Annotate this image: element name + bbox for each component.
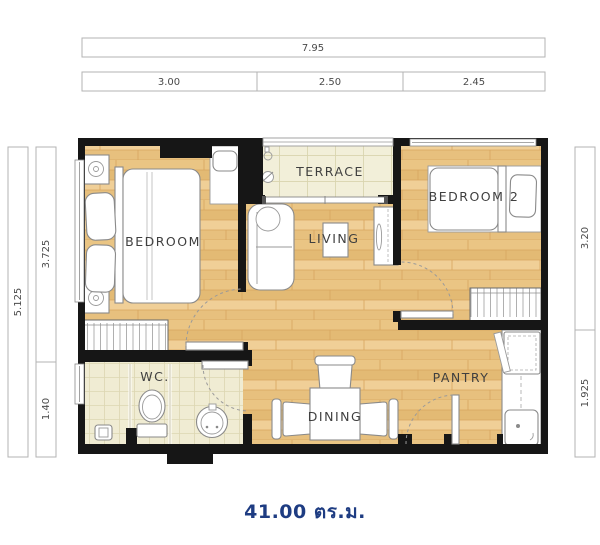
dim-value: 7.95: [302, 43, 324, 54]
dim-top-segments: 3.00 2.50 2.45: [82, 72, 545, 91]
pillow: [85, 245, 116, 293]
dim-top-total: 7.95: [82, 38, 545, 57]
floor-plan-page: BEDROOM TERRACE LIVING BEDROOM 2 WC. DIN…: [0, 0, 600, 545]
living-label: LIVING: [309, 231, 360, 246]
pantry-sink-icon: [505, 410, 538, 446]
wc-label: WC.: [140, 369, 170, 384]
shower-drain-icon: [95, 425, 112, 440]
dim-left-segments: 3.725 1.40: [36, 147, 56, 457]
tap-icon: [265, 147, 269, 152]
pillow: [85, 192, 116, 240]
window-wc-left: [75, 364, 84, 404]
toilet-tank: [137, 424, 167, 437]
total-area-label: 41.00 ตร.ม.: [244, 501, 366, 523]
dining-label: DINING: [308, 409, 362, 424]
dim-value: 3.00: [158, 77, 180, 88]
nightstand-top: [83, 155, 109, 184]
dining-chair-top: [315, 356, 355, 390]
dim-left-total: 5.125: [8, 147, 28, 457]
dining-chair-right: [360, 399, 398, 439]
bed-headboard: [115, 167, 123, 303]
ac-unit-icon: [213, 151, 237, 171]
dim-value: 2.45: [463, 77, 485, 88]
sofa-cushion: [256, 207, 280, 231]
door-leaf: [452, 395, 459, 444]
door-leaf: [202, 361, 248, 369]
dim-value: 1.40: [41, 398, 52, 420]
dim-value: 2.50: [319, 77, 341, 88]
bedroom2-label: BEDROOM 2: [429, 189, 520, 204]
floor-plan-drawing: BEDROOM TERRACE LIVING BEDROOM 2 WC. DIN…: [0, 0, 600, 545]
dim-value: 3.20: [580, 227, 591, 249]
bedroom-label: BEDROOM: [125, 234, 201, 249]
dim-value: 3.725: [41, 240, 52, 269]
door-leaf: [186, 342, 243, 350]
faucet-icon: [209, 404, 216, 410]
pantry-label: PANTRY: [433, 370, 490, 385]
terrace-sliding-door: [262, 196, 388, 204]
dim-value: 5.125: [13, 288, 24, 317]
door-leaf: [401, 311, 453, 318]
dining-chair-left: [272, 399, 310, 439]
window-bedroom2-top: [410, 139, 536, 146]
terrace-label: TERRACE: [295, 164, 364, 179]
dim-right-segments: 3.20 1.925: [575, 147, 595, 457]
window-bedroom-left: [75, 160, 84, 302]
dim-value: 1.925: [580, 379, 591, 408]
terrace-railing: [263, 138, 393, 146]
